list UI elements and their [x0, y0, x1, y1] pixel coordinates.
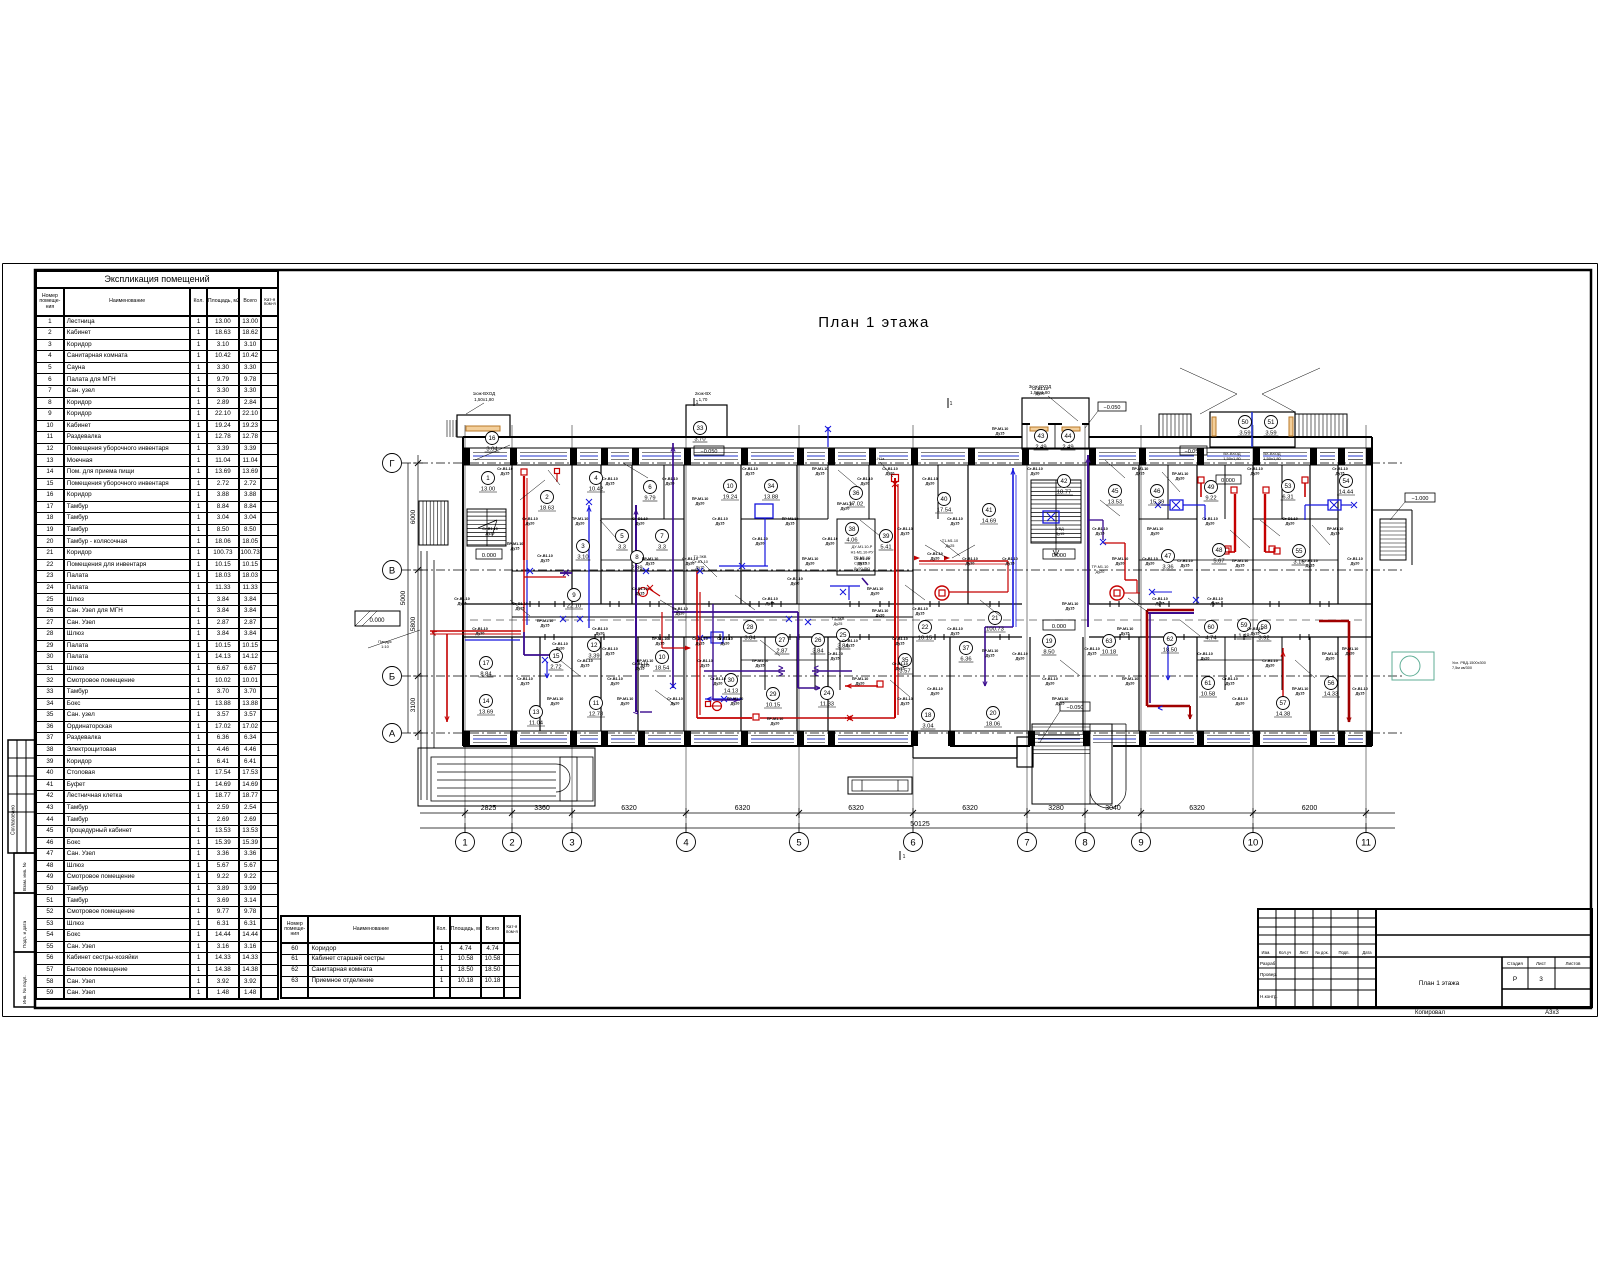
- svg-text:Ду20: Ду20: [931, 556, 940, 560]
- svg-text:Ду20: Ду20: [806, 561, 815, 565]
- svg-text:Ст-В1.10: Ст-В1.10: [742, 467, 758, 471]
- svg-text:ПР-М1.10: ПР-М1.10: [1322, 652, 1339, 656]
- svg-text:3: 3: [569, 838, 574, 849]
- svg-text:План 1 этажа: План 1 этажа: [818, 314, 930, 331]
- svg-text:Ду20: Ду20: [714, 681, 723, 685]
- svg-text:Ду20: Ду20: [966, 561, 975, 565]
- svg-text:Ду15: Ду15: [1156, 601, 1165, 605]
- svg-text:10.58: 10.58: [1201, 692, 1216, 698]
- svg-text:−0.050: −0.050: [1185, 449, 1202, 455]
- svg-text:Ду20: Ду20: [1116, 561, 1125, 565]
- svg-text:Ст-В1.10: Ст-В1.10: [712, 517, 728, 521]
- svg-text:ПР-М1.10: ПР-М1.10: [537, 619, 554, 623]
- svg-text:18.54: 18.54: [655, 666, 670, 672]
- svg-text:Ду15: Ду15: [1056, 701, 1065, 705]
- svg-text:Ду20: Ду20: [551, 701, 560, 705]
- svg-text:Усл. РВД-1500х300: Усл. РВД-1500х300: [1452, 661, 1486, 665]
- svg-text:Ст-В1.10: Ст-В1.10: [1302, 559, 1318, 563]
- svg-text:51: 51: [1268, 419, 1275, 426]
- svg-text:2.89: 2.89: [631, 566, 642, 572]
- svg-text:Ду15: Ду15: [501, 471, 510, 475]
- svg-text:100.73: 100.73: [986, 627, 1004, 633]
- svg-text:ДУ-М1.10-Р: ДУ-М1.10-Р: [852, 545, 873, 549]
- svg-text:Ду15: Ду15: [701, 663, 710, 667]
- svg-text:ПР-М1.10: ПР-М1.10: [752, 659, 769, 663]
- svg-text:1,70: 1,70: [699, 397, 708, 402]
- svg-text:Ст-В1.10: Ст-В1.10: [1032, 387, 1048, 391]
- svg-text:Ду20: Ду20: [1031, 471, 1040, 475]
- svg-text:Ду20: Ду20: [596, 631, 605, 635]
- svg-text:5000: 5000: [400, 590, 407, 605]
- svg-text:2.87: 2.87: [776, 649, 787, 655]
- svg-text:Ду15: Ду15: [606, 481, 615, 485]
- svg-text:2.49: 2.49: [1062, 445, 1073, 451]
- svg-text:28: 28: [747, 624, 754, 631]
- svg-text:ПР-М1.10: ПР-М1.10: [767, 717, 784, 721]
- svg-text:УВД: УВД: [1056, 527, 1064, 531]
- svg-text:29: 29: [770, 691, 777, 698]
- svg-text:Т1-М1.10: Т1-М1.10: [942, 539, 958, 543]
- svg-text:1,50х1,80: 1,50х1,80: [1263, 456, 1281, 461]
- svg-text:Ду15: Ду15: [636, 591, 645, 595]
- svg-text:Ст-В1.10: Ст-В1.10: [1262, 659, 1278, 663]
- svg-text:Ст-В1.10: Ст-В1.10: [1332, 467, 1348, 471]
- svg-text:Ду15: Ду15: [521, 681, 530, 685]
- svg-text:Ст-В1.10: Ст-В1.10: [692, 637, 708, 641]
- svg-text:Ст-В1.10: Ст-В1.10: [1092, 527, 1108, 531]
- svg-text:Ду20: Ду20: [1126, 681, 1135, 685]
- svg-text:Ду20: Ду20: [526, 521, 535, 525]
- svg-text:10.42: 10.42: [589, 487, 604, 493]
- svg-text:Ду20: Ду20: [696, 501, 705, 505]
- svg-text:10: 10: [659, 654, 666, 661]
- svg-text:19.24: 19.24: [723, 495, 738, 501]
- svg-text:Ду20: Ду20: [756, 541, 765, 545]
- svg-text:57: 57: [1280, 700, 1287, 707]
- svg-text:Ду15: Ду15: [1181, 563, 1190, 567]
- svg-text:30: 30: [728, 677, 735, 684]
- svg-text:36: 36: [853, 490, 860, 497]
- svg-text:Ду15: Ду15: [1331, 531, 1340, 535]
- svg-text:54: 54: [1343, 478, 1350, 485]
- svg-text:Ду15: Ду15: [1056, 532, 1065, 536]
- svg-text:Ст-В1.10: Ст-В1.10: [922, 477, 938, 481]
- svg-text:ТР-М1.10: ТР-М1.10: [1092, 565, 1109, 569]
- svg-text:План 1 этажа: План 1 этажа: [1419, 980, 1460, 987]
- svg-text:10.18: 10.18: [1102, 650, 1117, 656]
- svg-text:Разраб.: Разраб.: [1260, 961, 1277, 966]
- svg-text:Ст-В1.10: Ст-В1.10: [1352, 687, 1368, 691]
- svg-text:10: 10: [1248, 838, 1259, 849]
- svg-text:39: 39: [883, 533, 890, 540]
- svg-text:Ду15: Ду15: [696, 565, 705, 569]
- svg-text:№ док.: № док.: [1315, 950, 1328, 955]
- svg-text:3: 3: [1539, 976, 1543, 983]
- svg-text:Ду20: Ду20: [886, 471, 895, 475]
- svg-text:Ду15: Ду15: [901, 701, 910, 705]
- svg-text:18.77: 18.77: [1057, 490, 1072, 496]
- svg-text:Ст-В1.10: Ст-В1.10: [632, 587, 648, 591]
- svg-text:ПР-М1.10: ПР-М1.10: [1052, 697, 1069, 701]
- svg-text:Ду20: Ду20: [636, 521, 645, 525]
- svg-text:Ст-В1.10: Ст-В1.10: [1222, 677, 1238, 681]
- svg-text:Б: Б: [389, 672, 395, 683]
- svg-text:Ду15: Ду15: [1356, 691, 1365, 695]
- svg-text:6320: 6320: [735, 805, 751, 812]
- svg-text:14.69: 14.69: [982, 519, 997, 525]
- svg-text:56: 56: [1328, 680, 1335, 687]
- svg-text:Ду20: Ду20: [791, 581, 800, 585]
- svg-text:Ст-В1.10: Ст-В1.10: [454, 597, 470, 601]
- svg-text:В: В: [389, 566, 395, 577]
- svg-text:Ду15: Ду15: [816, 471, 825, 475]
- svg-text:Ду20: Ду20: [826, 541, 835, 545]
- svg-text:ПР-М1.10: ПР-М1.10: [867, 587, 884, 591]
- svg-text:Ду20: Ду20: [576, 521, 585, 525]
- svg-text:Ду15: Ду15: [746, 471, 755, 475]
- svg-text:44: 44: [1065, 433, 1072, 440]
- svg-text:Ст-В1.10: Ст-В1.10: [892, 662, 908, 666]
- svg-text:7: 7: [660, 533, 664, 540]
- svg-text:4.74: 4.74: [1205, 636, 1217, 642]
- svg-text:Ст-В1.10: Ст-В1.10: [522, 517, 538, 521]
- svg-text:Ст-В1.10: Ст-В1.10: [697, 659, 713, 663]
- svg-text:А: А: [389, 729, 396, 740]
- svg-text:ПР-М1.10: ПР-М1.10: [1117, 627, 1134, 631]
- svg-text:ПР-М1.10: ПР-М1.10: [992, 427, 1009, 431]
- svg-text:1.48: 1.48: [1238, 634, 1249, 640]
- svg-text:Т1-ЗКВ: Т1-ЗКВ: [832, 617, 845, 621]
- svg-text:Ст-В1.10: Ст-В1.10: [632, 662, 648, 666]
- svg-text:Ду15: Ду15: [1296, 691, 1305, 695]
- svg-text:22.10: 22.10: [567, 604, 582, 610]
- svg-text:2: 2: [545, 494, 549, 501]
- svg-text:Стадия: Стадия: [1507, 961, 1523, 966]
- svg-text:5: 5: [620, 533, 624, 540]
- svg-text:Ст-В1.10: Ст-В1.10: [1177, 559, 1193, 563]
- svg-text:50125: 50125: [910, 821, 930, 828]
- svg-text:17: 17: [483, 660, 490, 667]
- svg-text:ПР-М1.10: ПР-М1.10: [1147, 527, 1164, 531]
- svg-text:Ду15: Ду15: [916, 611, 925, 615]
- svg-text:11: 11: [1361, 838, 1371, 849]
- svg-text:Ду15: Ду15: [1251, 631, 1260, 635]
- svg-text:Ст-В1.10: Ст-В1.10: [632, 517, 648, 521]
- svg-text:48: 48: [1216, 547, 1223, 554]
- svg-text:Ду20: Ду20: [621, 701, 630, 705]
- svg-text:1: 1: [903, 854, 906, 860]
- svg-text:Ду20: Ду20: [841, 506, 850, 510]
- svg-text:ПР-М1.10: ПР-М1.10: [1172, 472, 1189, 476]
- svg-text:13.53: 13.53: [1108, 500, 1123, 506]
- svg-text:8: 8: [1082, 838, 1087, 849]
- svg-text:Ду15: Ду15: [951, 521, 960, 525]
- svg-text:6: 6: [910, 838, 915, 849]
- svg-text:Н1-М1.10-РУ: Н1-М1.10-РУ: [851, 551, 874, 555]
- svg-text:Ду15: Ду15: [606, 651, 615, 655]
- svg-text:4: 4: [594, 475, 598, 482]
- svg-text:2юж-ВХ: 2юж-ВХ: [695, 391, 711, 396]
- svg-text:Листов: Листов: [1566, 961, 1581, 966]
- svg-text:ПР-М1.10: ПР-М1.10: [1062, 602, 1079, 606]
- svg-text:Ду20: Ду20: [1046, 681, 1055, 685]
- svg-text:1: 1: [950, 401, 953, 407]
- svg-text:14.44: 14.44: [1339, 490, 1354, 496]
- svg-text:ПР-М1.10: ПР-М1.10: [507, 542, 524, 546]
- svg-text:Ст-В1.10: Ст-В1.10: [537, 554, 553, 558]
- svg-text:Ду15: Ду15: [1226, 681, 1235, 685]
- svg-text:17.54: 17.54: [937, 508, 952, 514]
- svg-text:21: 21: [992, 615, 999, 622]
- svg-text:3280: 3280: [1048, 805, 1064, 812]
- svg-text:47: 47: [1165, 553, 1172, 560]
- svg-text:Ду20: Ду20: [1201, 656, 1210, 660]
- svg-text:6320: 6320: [1189, 805, 1205, 812]
- svg-text:Ст-В1.10: Ст-В1.10: [1207, 597, 1223, 601]
- svg-text:18.63: 18.63: [540, 506, 555, 512]
- svg-text:Ст-В1.10: Ст-В1.10: [1232, 697, 1248, 701]
- svg-text:55: 55: [1296, 548, 1303, 555]
- svg-text:Ст-В1.10: Ст-В1.10: [1247, 467, 1263, 471]
- svg-text:ПР-М1.10: ПР-М1.10: [1122, 677, 1139, 681]
- svg-text:Р: Р: [1513, 976, 1517, 983]
- svg-text:Ст-В1.10: Ст-В1.10: [1002, 557, 1018, 561]
- svg-text:Ст-В1.10: Ст-В1.10: [1247, 627, 1263, 631]
- svg-text:ПР-М1.10: ПР-М1.10: [837, 502, 854, 506]
- svg-text:Ду15: Ду15: [581, 663, 590, 667]
- svg-text:Ду20: Ду20: [731, 701, 740, 705]
- svg-text:16: 16: [489, 435, 496, 442]
- svg-text:0.000: 0.000: [1052, 553, 1067, 559]
- svg-text:46: 46: [1154, 488, 1161, 495]
- svg-text:Ст-В1.10: Ст-В1.10: [927, 552, 943, 556]
- svg-text:Ду20: Ду20: [1036, 391, 1045, 395]
- svg-text:45: 45: [1112, 488, 1119, 495]
- svg-text:ПР-М1.10: ПР-М1.10: [812, 467, 829, 471]
- svg-text:Ду20: Ду20: [1351, 561, 1360, 565]
- svg-text:10.15: 10.15: [918, 636, 933, 642]
- svg-text:Ст-В1.10: Ст-В1.10: [787, 577, 803, 581]
- svg-text:3100: 3100: [410, 697, 417, 712]
- svg-text:15: 15: [553, 653, 560, 660]
- svg-text:3.04: 3.04: [922, 724, 934, 730]
- svg-text:ПР-М1.10: ПР-М1.10: [1112, 557, 1129, 561]
- svg-text:Ду15: Ду15: [1096, 531, 1105, 535]
- svg-text:ПР-М1.10: ПР-М1.10: [1132, 467, 1149, 471]
- svg-text:Ст-В1.10: Ст-В1.10: [827, 652, 843, 656]
- svg-text:37: 37: [963, 645, 970, 652]
- svg-text:42: 42: [1061, 478, 1068, 485]
- svg-text:Ду15: Ду15: [756, 663, 765, 667]
- svg-text:Ст-В1.10: Ст-В1.10: [717, 637, 733, 641]
- svg-text:1,50х1,80: 1,50х1,80: [1223, 456, 1241, 461]
- svg-text:6320: 6320: [962, 805, 978, 812]
- svg-text:Ду20: Ду20: [871, 591, 880, 595]
- svg-text:Ст-В1.10: Ст-В1.10: [1012, 652, 1028, 656]
- svg-text:Ст-В1.10: Ст-В1.10: [667, 697, 683, 701]
- svg-text:26: 26: [815, 637, 822, 644]
- svg-text:Ду20: Ду20: [931, 691, 940, 695]
- svg-text:−0.050: −0.050: [1104, 405, 1121, 411]
- svg-text:4: 4: [683, 838, 688, 849]
- svg-text:18: 18: [925, 712, 932, 719]
- svg-text:8.50: 8.50: [1043, 650, 1054, 656]
- svg-text:Подп. и дата: Подп. и дата: [22, 920, 27, 948]
- svg-text:ПР-М1.10: ПР-М1.10: [1342, 647, 1359, 651]
- svg-text:Ду15: Ду15: [858, 561, 867, 565]
- svg-text:Ду20: Ду20: [1211, 601, 1220, 605]
- svg-text:0.000: 0.000: [369, 618, 385, 624]
- svg-text:Кол.уч: Кол.уч: [1279, 950, 1292, 955]
- svg-text:ПР-М1.10: ПР-М1.10: [727, 697, 744, 701]
- svg-text:Изм.: Изм.: [1262, 950, 1271, 955]
- svg-text:6200: 6200: [1302, 805, 1318, 812]
- svg-text:43: 43: [1038, 433, 1045, 440]
- svg-text:2.49: 2.49: [1035, 445, 1046, 451]
- svg-text:Ст-В1.10: Ст-В1.10: [822, 537, 838, 541]
- svg-text:Ду20: Ду20: [856, 681, 865, 685]
- svg-text:ПР-М1.10: ПР-М1.10: [782, 517, 799, 521]
- svg-text:Инв. № подл.: Инв. № подл.: [22, 975, 27, 1004]
- svg-text:Ст-В1.10: Ст-В1.10: [1282, 517, 1298, 521]
- svg-text:Лист: Лист: [1536, 961, 1547, 966]
- svg-text:Ду20: Ду20: [1151, 531, 1160, 535]
- svg-text:13.00: 13.00: [481, 487, 496, 493]
- svg-text:Ду15: Ду15: [896, 666, 905, 670]
- svg-text:5.67: 5.67: [1213, 559, 1224, 565]
- svg-text:ПР-М1.10: ПР-М1.10: [617, 697, 634, 701]
- svg-text:12: 12: [591, 642, 598, 649]
- svg-text:Ду15: Ду15: [831, 656, 840, 660]
- svg-text:3.10: 3.10: [577, 555, 588, 561]
- svg-text:Ст-В1.10: Ст-В1.10: [512, 602, 528, 606]
- svg-text:ПР-М1.10: ПР-М1.10: [692, 497, 709, 501]
- svg-text:Ст-В1.10: Ст-В1.10: [1152, 597, 1168, 601]
- svg-text:Провер.: Провер.: [1260, 972, 1277, 977]
- svg-text:Ду20: Ду20: [1326, 656, 1335, 660]
- svg-text:Ст-В1.10: Ст-В1.10: [1202, 517, 1218, 521]
- svg-text:ПР-М1.10: ПР-М1.10: [872, 609, 889, 613]
- svg-text:Ст-В1.10: Ст-В1.10: [552, 642, 568, 646]
- svg-text:ПР-М1.10: ПР-М1.10: [1232, 559, 1249, 563]
- svg-text:ПР-М1.10: ПР-М1.10: [802, 557, 819, 561]
- svg-text:Ду20: Ду20: [476, 631, 485, 635]
- svg-text:0.000: 0.000: [1221, 478, 1235, 484]
- svg-text:33: 33: [697, 425, 704, 432]
- svg-text:Ду20: Ду20: [721, 641, 730, 645]
- svg-text:Ст-В1.10: Ст-В1.10: [857, 477, 873, 481]
- svg-text:9.79: 9.79: [644, 496, 655, 502]
- svg-text:Ду15: Ду15: [1306, 563, 1315, 567]
- svg-text:6.36: 6.36: [960, 657, 971, 663]
- svg-text:ПР-М1.10: ПР-М1.10: [642, 557, 659, 561]
- svg-text:14.38: 14.38: [1276, 712, 1291, 718]
- svg-text:24: 24: [824, 690, 831, 697]
- svg-text:Ду20: Ду20: [926, 481, 935, 485]
- svg-text:1: 1: [696, 400, 699, 406]
- svg-text:Ст-В1.10: Ст-В1.10: [762, 597, 778, 601]
- svg-text:34: 34: [768, 483, 775, 490]
- svg-text:Ст-В1.10: Ст-В1.10: [854, 557, 870, 561]
- svg-text:63: 63: [1106, 638, 1113, 645]
- svg-text:14.13: 14.13: [724, 689, 739, 695]
- svg-text:Ду20: Ду20: [1266, 663, 1275, 667]
- svg-text:Ду15: Ду15: [716, 521, 725, 525]
- svg-text:Ду15: Ду15: [646, 561, 655, 565]
- svg-text:Ду15: Ду15: [516, 606, 525, 610]
- svg-text:60: 60: [1208, 624, 1215, 631]
- svg-text:Ду20: Ду20: [556, 646, 565, 650]
- svg-text:Ст-В1.10: Ст-В1.10: [892, 637, 908, 641]
- svg-text:Ду20-ЛЮ: Ду20-ЛЮ: [854, 567, 871, 571]
- svg-text:Ду15: Ду15: [1088, 651, 1097, 655]
- svg-text:Ст-В1.10: Ст-В1.10: [1197, 652, 1213, 656]
- svg-text:Ду20: Ду20: [666, 481, 675, 485]
- svg-text:−1.000: −1.000: [1412, 496, 1429, 502]
- svg-text:40: 40: [941, 496, 948, 503]
- svg-text:3360: 3360: [534, 805, 550, 812]
- svg-text:Взам. инв. №: Взам. инв. №: [22, 862, 27, 891]
- svg-text:49: 49: [1208, 484, 1215, 491]
- svg-text:Подп.: Подп.: [1338, 950, 1349, 955]
- svg-text:3.3: 3.3: [658, 545, 666, 551]
- svg-text:6.31: 6.31: [1282, 495, 1293, 501]
- svg-text:Ду20: Ду20: [1236, 701, 1245, 705]
- svg-text:Ду20: Ду20: [1286, 521, 1295, 525]
- svg-text:2825: 2825: [481, 805, 497, 812]
- svg-text:Ду20: Ду20: [611, 681, 620, 685]
- svg-text:15.39: 15.39: [1150, 500, 1165, 506]
- svg-text:10.15: 10.15: [766, 703, 781, 709]
- svg-text:Ду25: Ду25: [834, 622, 843, 626]
- svg-text:Ду15: Ду15: [458, 601, 467, 605]
- svg-text:Ду15: Ду15: [766, 601, 775, 605]
- svg-text:61: 61: [1205, 680, 1212, 687]
- svg-text:6: 6: [648, 484, 652, 491]
- svg-text:1,50х1,80: 1,50х1,80: [474, 397, 494, 402]
- svg-text:62: 62: [1167, 636, 1174, 643]
- svg-text:Ст-В1.10: Ст-В1.10: [577, 659, 593, 663]
- svg-text:Ст-В1.10: Ст-В1.10: [592, 627, 608, 631]
- svg-text:3.59: 3.59: [1265, 431, 1276, 437]
- svg-text:Ду15: Ду15: [1236, 563, 1245, 567]
- svg-text:19: 19: [1046, 638, 1053, 645]
- svg-text:Ду15: Ду15: [511, 546, 520, 550]
- svg-text:Ду20: Ду20: [861, 481, 870, 485]
- svg-text:11: 11: [593, 700, 600, 707]
- svg-text:9: 9: [572, 592, 576, 599]
- svg-text:Ст-В1.10: Ст-В1.10: [962, 557, 978, 561]
- svg-text:3.84: 3.84: [744, 636, 756, 642]
- svg-text:Ст-В1.10: Ст-В1.10: [1027, 467, 1043, 471]
- svg-text:11.04: 11.04: [529, 721, 544, 727]
- svg-text:Ст-В1.10: Ст-В1.10: [947, 517, 963, 521]
- svg-text:38: 38: [849, 526, 856, 533]
- svg-text:Ду15: Ду15: [986, 653, 995, 657]
- svg-text:Ду15: Ду15: [996, 431, 1005, 435]
- svg-text:Ст-В1.10: Ст-В1.10: [927, 687, 943, 691]
- svg-text:5.41: 5.41: [880, 545, 891, 551]
- svg-text:Ду15: Ду15: [901, 531, 910, 535]
- svg-text:0.000: 0.000: [482, 553, 497, 559]
- svg-text:Ду15: Ду15: [1136, 471, 1145, 475]
- svg-text:ПР-М1.10: ПР-М1.10: [652, 637, 669, 641]
- svg-text:Ст-В1.10: Ст-В1.10: [897, 527, 913, 531]
- svg-text:7: 7: [1024, 838, 1029, 849]
- svg-text:Ду15: Ду15: [846, 643, 855, 647]
- svg-text:Ду20: Ду20: [1346, 651, 1355, 655]
- svg-text:Ст-В1.10: Ст-В1.10: [682, 557, 698, 561]
